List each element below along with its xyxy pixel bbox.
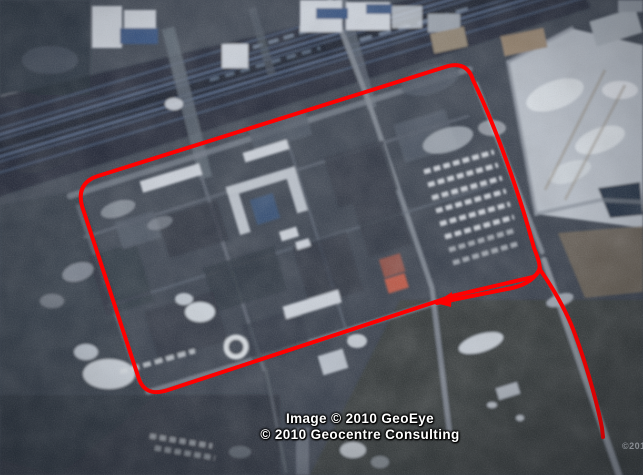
route-overlay (0, 0, 643, 475)
attribution: Image © 2010 GeoEye © 2010 Geocentre Con… (250, 411, 470, 443)
attribution-line1: Image © 2010 GeoEye (250, 411, 470, 427)
route-loop-path (81, 65, 540, 392)
corner-watermark: ©2010 (622, 441, 643, 451)
attribution-line2: © 2010 Geocentre Consulting (250, 427, 470, 443)
route-exit-line (541, 271, 603, 437)
satellite-map-view[interactable]: Image © 2010 GeoEye © 2010 Geocentre Con… (0, 0, 643, 475)
